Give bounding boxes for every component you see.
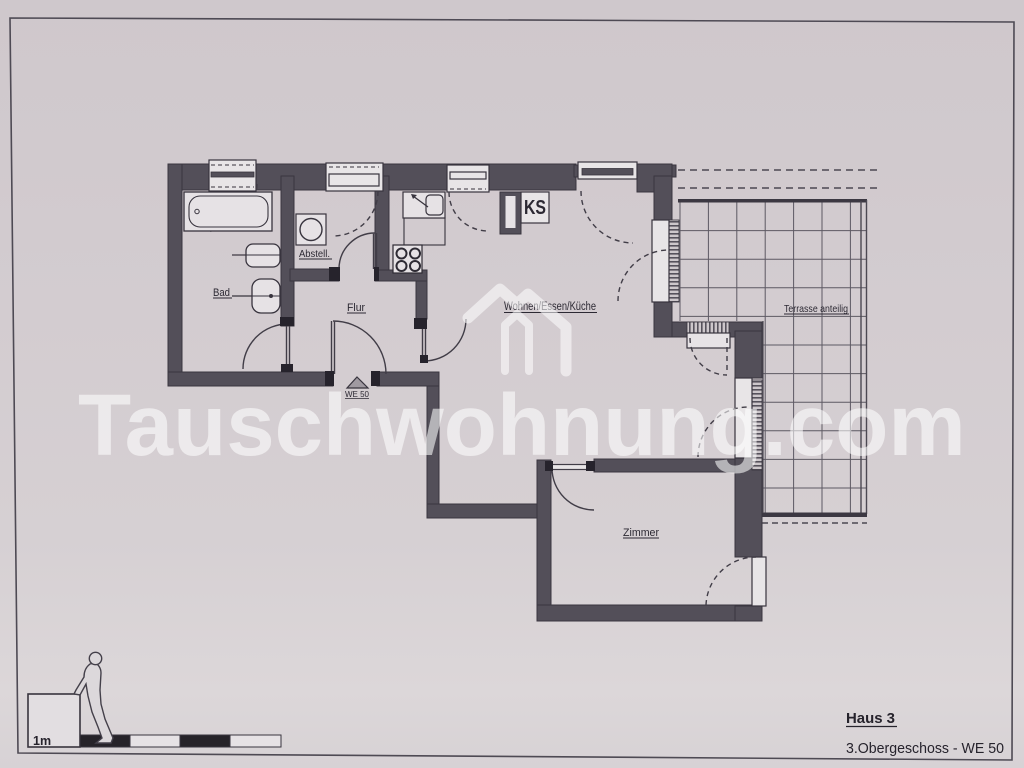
svg-text:KS: KS [524,197,546,219]
svg-text:Bad: Bad [213,287,230,299]
svg-text:Abstell.: Abstell. [299,248,330,260]
svg-text:Zimmer: Zimmer [623,527,659,539]
svg-text:3.Obergeschoss - WE 50: 3.Obergeschoss - WE 50 [846,740,1004,757]
svg-text:Terrasse anteilig: Terrasse anteilig [784,303,848,315]
svg-text:1m: 1m [33,734,51,748]
svg-text:Haus 3: Haus 3 [846,710,895,727]
svg-text:Flur: Flur [347,302,365,314]
svg-text:Tauschwohnung.com: Tauschwohnung.com [78,377,966,474]
